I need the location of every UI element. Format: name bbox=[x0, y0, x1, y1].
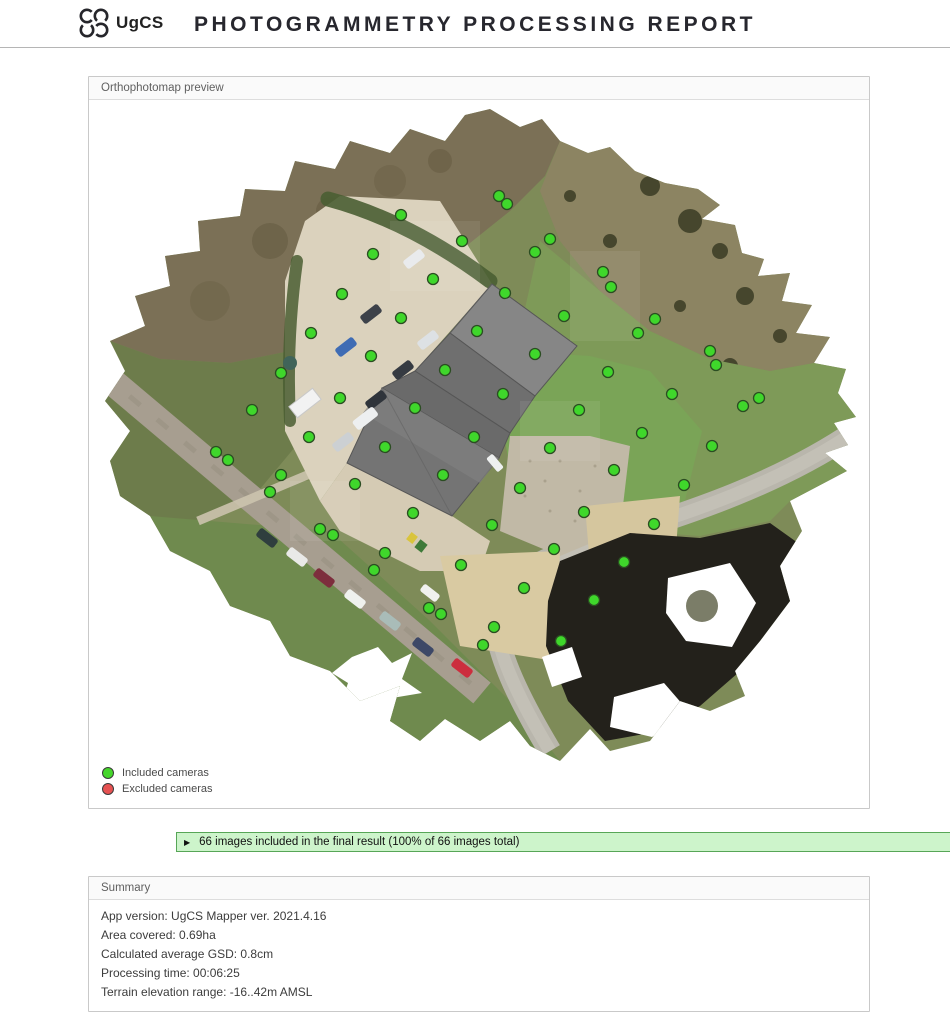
orthophoto-image bbox=[90, 101, 870, 763]
legend-label: Included cameras bbox=[122, 767, 209, 779]
legend-dot-icon bbox=[102, 767, 114, 779]
camera-marker bbox=[428, 274, 439, 285]
camera-marker bbox=[440, 365, 451, 376]
camera-marker bbox=[223, 455, 234, 466]
camera-marker bbox=[489, 622, 500, 633]
orthophotomap-panel: Orthophotomap preview bbox=[88, 76, 870, 809]
camera-marker bbox=[679, 480, 690, 491]
page-title: PHOTOGRAMMETRY PROCESSING REPORT bbox=[0, 13, 950, 37]
camera-marker bbox=[498, 389, 509, 400]
camera-marker bbox=[457, 236, 468, 247]
report-header: UgCS PHOTOGRAMMETRY PROCESSING REPORT bbox=[0, 0, 950, 48]
camera-marker bbox=[637, 428, 648, 439]
camera-marker bbox=[247, 405, 258, 416]
camera-marker bbox=[276, 368, 287, 379]
orthophotomap-body: Included camerasExcluded cameras bbox=[89, 100, 869, 808]
camera-marker bbox=[545, 234, 556, 245]
orthophotomap-panel-header: Orthophotomap preview bbox=[89, 77, 869, 100]
camera-marker bbox=[711, 360, 722, 371]
summary-row: Area covered: 0.69ha bbox=[101, 926, 857, 945]
camera-marker bbox=[519, 583, 530, 594]
camera-marker bbox=[368, 249, 379, 260]
legend-label: Excluded cameras bbox=[122, 783, 213, 795]
camera-marker bbox=[366, 351, 377, 362]
camera-marker bbox=[667, 389, 678, 400]
camera-marker bbox=[478, 640, 489, 651]
camera-marker bbox=[436, 609, 447, 620]
camera-marker bbox=[211, 447, 222, 458]
orthophotomap-panel-title: Orthophotomap preview bbox=[101, 82, 224, 94]
summary-body: App version: UgCS Mapper ver. 2021.4.16A… bbox=[89, 900, 869, 1011]
camera-marker bbox=[603, 367, 614, 378]
camera-marker bbox=[589, 595, 600, 606]
camera-marker bbox=[369, 565, 380, 576]
camera-marker bbox=[609, 465, 620, 476]
camera-marker bbox=[598, 267, 609, 278]
camera-marker bbox=[408, 508, 419, 519]
camera-marker bbox=[335, 393, 346, 404]
summary-panel-header: Summary bbox=[89, 877, 869, 900]
expand-arrow-icon: ▶ bbox=[184, 838, 190, 847]
summary-row: Terrain elevation range: -16..42m AMSL bbox=[101, 983, 857, 1002]
summary-row: Processing time: 00:06:25 bbox=[101, 964, 857, 983]
camera-marker bbox=[315, 524, 326, 535]
camera-marker bbox=[396, 210, 407, 221]
camera-marker bbox=[396, 313, 407, 324]
camera-marker bbox=[350, 479, 361, 490]
camera-marker bbox=[530, 247, 541, 258]
camera-marker bbox=[559, 311, 570, 322]
camera-marker bbox=[265, 487, 276, 498]
camera-marker bbox=[424, 603, 435, 614]
camera-marker bbox=[380, 548, 391, 559]
camera-marker bbox=[606, 282, 617, 293]
camera-marker bbox=[487, 520, 498, 531]
camera-marker bbox=[707, 441, 718, 452]
legend-item: Excluded cameras bbox=[102, 781, 868, 797]
report-main: Orthophotomap preview bbox=[88, 76, 870, 1012]
camera-marker bbox=[469, 432, 480, 443]
camera-marker bbox=[304, 432, 315, 443]
camera-marker bbox=[410, 403, 421, 414]
summary-panel: Summary App version: UgCS Mapper ver. 20… bbox=[88, 876, 870, 1012]
camera-marker bbox=[306, 328, 317, 339]
camera-marker bbox=[545, 443, 556, 454]
camera-marker bbox=[276, 470, 287, 481]
camera-marker bbox=[738, 401, 749, 412]
summary-row: Calculated average GSD: 0.8cm bbox=[101, 945, 857, 964]
camera-marker bbox=[619, 557, 630, 568]
summary-panel-title: Summary bbox=[101, 882, 150, 894]
camera-marker bbox=[754, 393, 765, 404]
camera-marker bbox=[380, 442, 391, 453]
images-included-text: 66 images included in the final result (… bbox=[199, 836, 519, 848]
camera-legend: Included camerasExcluded cameras bbox=[90, 763, 868, 807]
camera-marker bbox=[705, 346, 716, 357]
legend-item: Included cameras bbox=[102, 765, 868, 781]
camera-marker bbox=[650, 314, 661, 325]
summary-row: App version: UgCS Mapper ver. 2021.4.16 bbox=[101, 907, 857, 926]
terrain bbox=[90, 101, 870, 763]
camera-marker bbox=[438, 470, 449, 481]
camera-marker bbox=[500, 288, 511, 299]
camera-marker bbox=[549, 544, 560, 555]
camera-marker bbox=[530, 349, 541, 360]
legend-dot-icon bbox=[102, 783, 114, 795]
camera-marker bbox=[328, 530, 339, 541]
camera-marker bbox=[556, 636, 567, 647]
camera-marker bbox=[579, 507, 590, 518]
camera-marker bbox=[649, 519, 660, 530]
camera-marker bbox=[502, 199, 513, 210]
camera-marker bbox=[515, 483, 526, 494]
camera-marker bbox=[456, 560, 467, 571]
camera-marker bbox=[574, 405, 585, 416]
images-included-banner[interactable]: ▶ 66 images included in the final result… bbox=[176, 832, 950, 852]
camera-marker bbox=[337, 289, 348, 300]
camera-marker bbox=[633, 328, 644, 339]
camera-marker bbox=[472, 326, 483, 337]
